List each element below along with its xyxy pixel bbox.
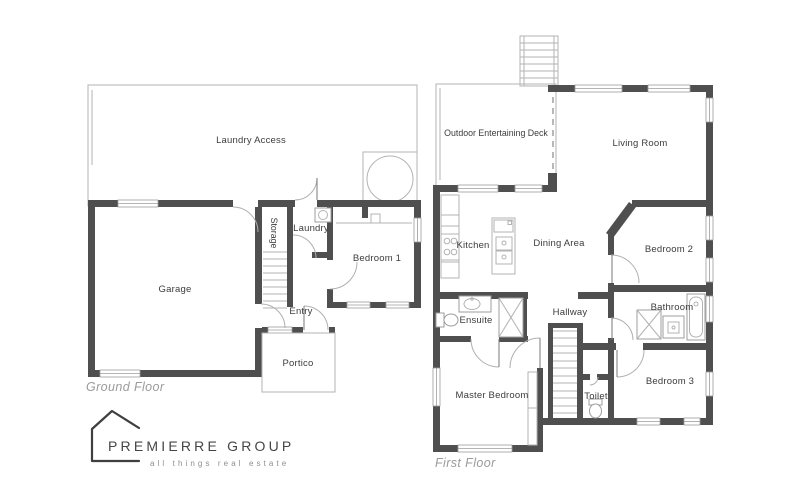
island-sink [496,237,512,250]
ground-walls [88,200,421,377]
room-label-entry: Entry [289,306,312,317]
ground-stairs [263,252,287,308]
room-label-laundry-access: Laundry Access [216,135,286,146]
room-label-bedroom3: Bedroom 3 [646,376,694,387]
ground-floor-plan: Laundry Access Storage Laundry Bedroom 1… [86,85,421,394]
room-label-bedroom1: Bedroom 1 [353,253,401,264]
first-floor-plan: Outdoor Entertaining Deck Living Room Ki… [433,36,713,470]
room-label-bathroom: Bathroom [651,302,694,313]
room-label-deck: Outdoor Entertaining Deck [444,128,548,138]
first-stairs [553,331,577,413]
room-label-ensuite: Ensuite [459,315,492,326]
room-label-kitchen: Kitchen [456,240,489,251]
room-label-laundry: Laundry [293,223,329,234]
room-label-portico: Portico [283,358,314,369]
logo-tagline: all things real estate [150,459,289,468]
room-label-living-room: Living Room [612,138,667,149]
laundry-tub-fixture [315,208,331,222]
room-label-bedroom2: Bedroom 2 [645,244,693,255]
room-label-toilet: Toilet [584,391,608,402]
room-label-storage: Storage [269,218,279,249]
bedroom1-robe [336,214,412,223]
kitchen-counter [441,195,459,278]
floorplan-page: Laundry Access Storage Laundry Bedroom 1… [0,0,800,494]
room-label-dining: Dining Area [533,238,585,249]
room-label-hallway: Hallway [553,307,588,318]
master-robe [528,372,537,445]
kitchen-island [492,218,515,274]
bathroom-vanity [663,316,684,338]
logo-name: PREMIERRE GROUP [108,438,294,454]
premierre-group-logo: PREMIERRE GROUP all things real estate [92,411,294,468]
bathroom-fixtures [637,294,705,340]
room-label-garage: Garage [159,284,192,295]
ground-floor-title: Ground Floor [86,380,165,394]
floorplan-canvas: Laundry Access Storage Laundry Bedroom 1… [0,0,800,494]
water-tank [363,152,417,206]
ensuite-toilet [436,313,444,327]
room-label-master-bedroom: Master Bedroom [455,390,528,401]
external-stairs [520,36,558,86]
first-floor-title: First Floor [435,456,496,470]
